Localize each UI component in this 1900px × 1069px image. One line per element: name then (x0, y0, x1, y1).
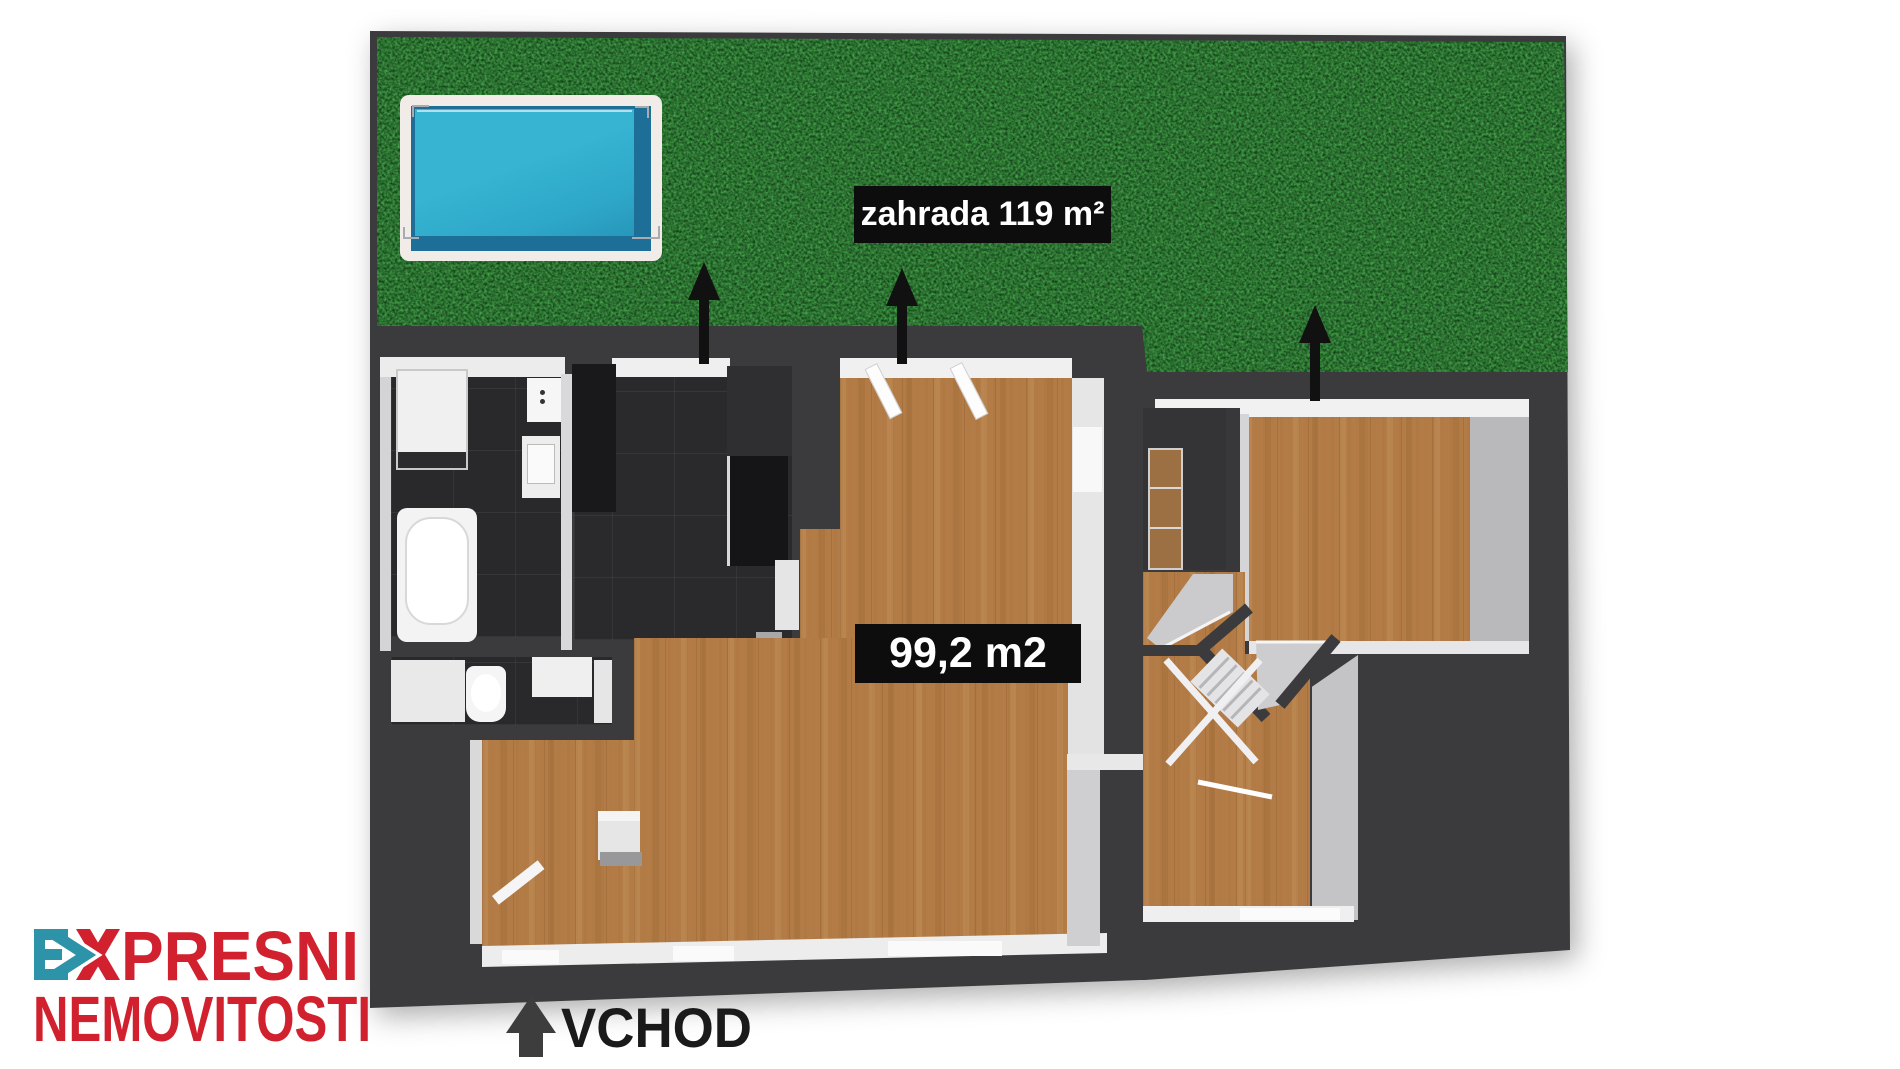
svg-text:NEMOVITOSTI: NEMOVITOSTI (33, 983, 371, 1055)
svg-text:VCHOD: VCHOD (561, 996, 752, 1059)
